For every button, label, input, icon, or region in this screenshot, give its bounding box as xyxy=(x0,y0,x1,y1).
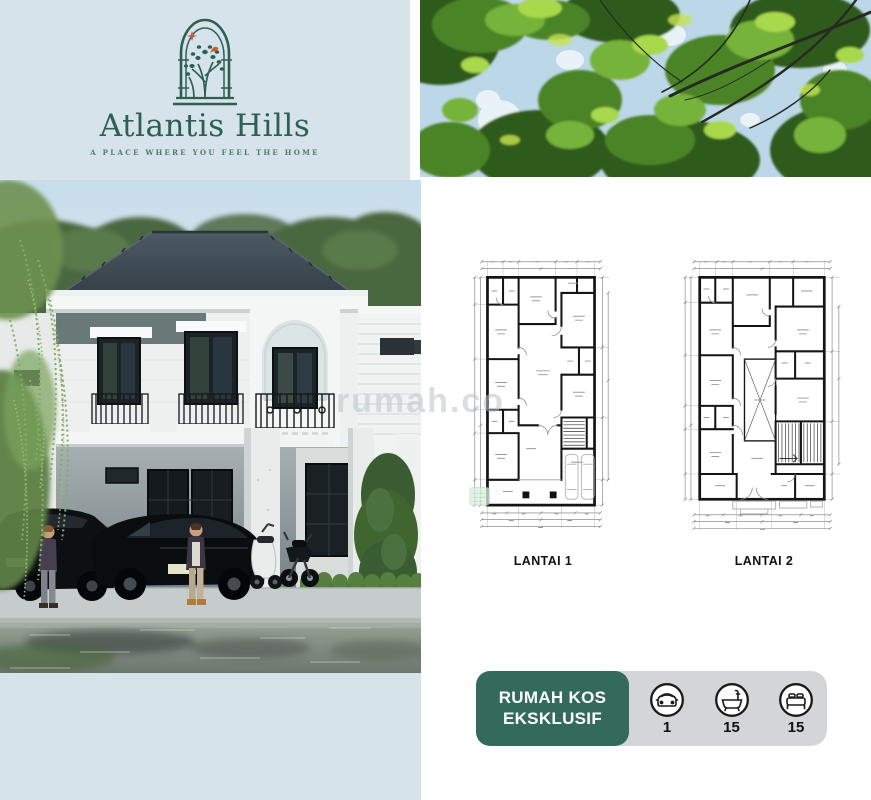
water-reflection xyxy=(0,618,421,673)
info-badge: RUMAH KOS EKSKLUSIF 1 xyxy=(476,671,827,746)
brochure-page: Atlantis Hills A PLACE WHERE YOU FEEL TH… xyxy=(0,0,871,800)
watermark: rumah.co xyxy=(336,382,616,421)
brand-tagline: A PLACE WHERE YOU FEEL THE HOME xyxy=(0,148,410,157)
house-photo xyxy=(0,180,421,673)
brand-title: Atlantis Hills xyxy=(0,108,410,144)
feature-bedroom: 15 xyxy=(773,682,819,736)
car-icon xyxy=(649,682,685,718)
floorplan-1-label: LANTAI 1 xyxy=(470,554,616,568)
bedroom-count: 15 xyxy=(788,719,805,736)
badge-features: 1 15 xyxy=(636,671,827,746)
floorplan-lantai-2 xyxy=(678,254,846,546)
upper-window-center-left xyxy=(176,321,246,444)
bathtub-icon xyxy=(714,682,750,718)
badge-line1: RUMAH KOS xyxy=(499,688,607,708)
bed-icon xyxy=(778,682,814,718)
bathroom-count: 15 xyxy=(723,719,740,736)
bottom-left-background xyxy=(0,673,421,800)
tree-canopy-photo xyxy=(420,0,871,177)
carport-count: 1 xyxy=(663,719,671,736)
badge-title: RUMAH KOS EKSKLUSIF xyxy=(476,671,629,746)
floorplan-2-label: LANTAI 2 xyxy=(680,554,848,568)
feature-carport: 1 xyxy=(644,682,690,736)
bird-icon xyxy=(187,31,219,53)
arch-tree-logo-icon xyxy=(172,14,238,106)
brand-panel: Atlantis Hills A PLACE WHERE YOU FEEL TH… xyxy=(0,0,410,180)
badge-line2: EKSKLUSIF xyxy=(503,709,602,729)
feature-bathroom: 15 xyxy=(709,682,755,736)
